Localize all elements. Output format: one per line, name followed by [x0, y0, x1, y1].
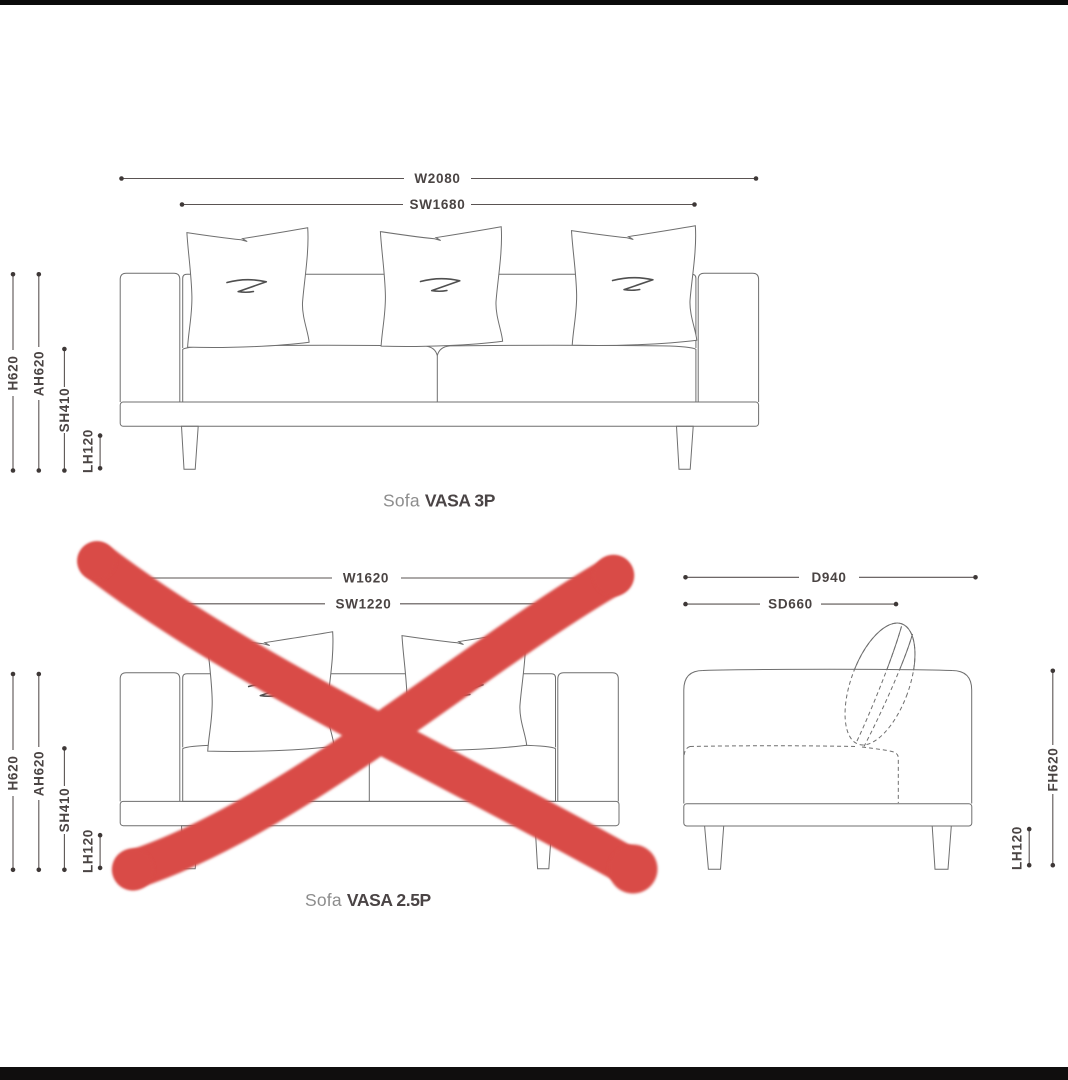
svg-text:D940: D940: [811, 570, 846, 585]
svg-text:H620: H620: [6, 755, 21, 790]
svg-text:LH120: LH120: [81, 829, 96, 873]
svg-text:SW1220: SW1220: [336, 596, 392, 611]
svg-text:SH410: SH410: [57, 788, 72, 833]
svg-text:Sofa VASA 3P: Sofa VASA 3P: [383, 491, 496, 511]
svg-text:SW1680: SW1680: [410, 197, 466, 212]
svg-text:W1620: W1620: [343, 571, 389, 586]
svg-text:FH620: FH620: [1045, 747, 1060, 791]
svg-text:W2080: W2080: [414, 171, 460, 186]
svg-text:Sofa VASA 2.5P: Sofa VASA 2.5P: [305, 890, 432, 910]
svg-text:LH120: LH120: [1010, 826, 1025, 870]
svg-text:AH620: AH620: [31, 351, 46, 397]
svg-text:SD660: SD660: [768, 597, 813, 612]
svg-text:H620: H620: [6, 355, 21, 390]
svg-text:AH620: AH620: [31, 751, 46, 797]
svg-text:SH410: SH410: [57, 388, 72, 433]
svg-text:LH120: LH120: [81, 429, 96, 473]
